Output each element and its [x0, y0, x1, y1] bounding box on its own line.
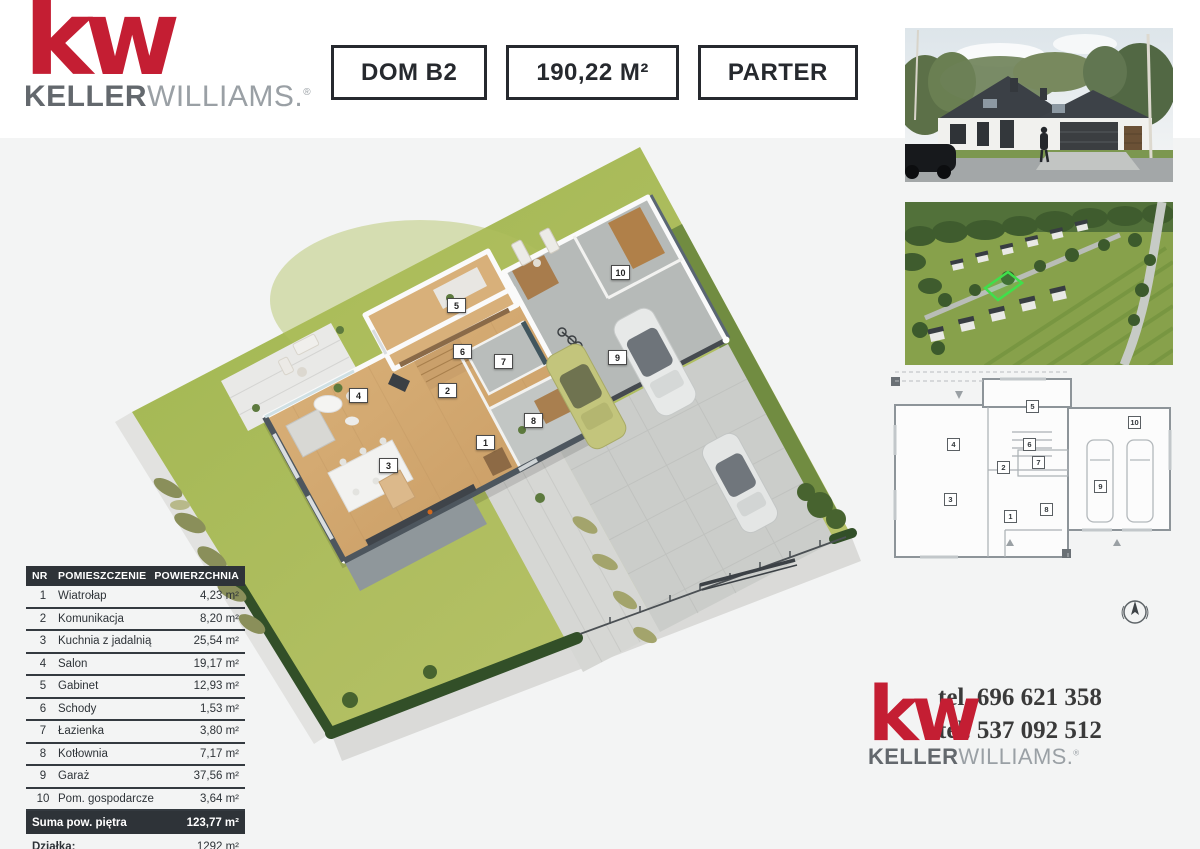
room-label-2d: 4: [947, 438, 960, 451]
header-badges: DOM B2 190,22 M² PARTER: [331, 45, 858, 100]
table-row: 3Kuchnia z jadalnią25,54 m²: [26, 631, 245, 654]
room-label-2d: 7: [1032, 456, 1045, 469]
table-plot-row: Działka:1292 m²: [26, 834, 245, 849]
room-label-2d: 2: [997, 461, 1010, 474]
table-summary-row: Suma pow. piętra123,77 m²: [26, 811, 245, 834]
room-label-2d: 5: [1026, 400, 1039, 413]
room-label-2d: 10: [1128, 416, 1141, 429]
table-row: 1Wiatrołap4,23 m²: [26, 586, 245, 609]
room-area-table: NR POMIESZCZENIE POWIERZCHNIA 1Wiatrołap…: [26, 566, 245, 849]
room-label-3d: 3: [379, 458, 398, 473]
room-label-3d: 9: [608, 350, 627, 365]
table-row: 7Łazienka3,80 m²: [26, 721, 245, 744]
room-label-2d: 8: [1040, 503, 1053, 516]
keller-williams-logo-top: kw KELLERWILLIAMS.®: [24, 0, 311, 112]
table-row: 5Gabinet12,93 m²: [26, 676, 245, 699]
badge-floor-name: PARTER: [698, 45, 858, 100]
room-label-3d: 5: [447, 298, 466, 313]
badge-total-area: 190,22 M²: [506, 45, 679, 100]
compass-icon: [1122, 601, 1148, 623]
keller-williams-logo-bottom: kw KELLERWILLIAMS.®: [868, 676, 1080, 768]
room-label-3d: 10: [611, 265, 630, 280]
coffee-table: [314, 396, 342, 413]
room-label-3d: 8: [524, 413, 543, 428]
room-label-3d: 4: [349, 388, 368, 403]
table-header: NR POMIESZCZENIE POWIERZCHNIA: [26, 566, 245, 586]
flyer-page: kw KELLERWILLIAMS.® DOM B2 190,22 M² PAR…: [0, 0, 1200, 849]
room-label-2d: 9: [1094, 480, 1107, 493]
room-label-2d: 3: [944, 493, 957, 506]
room-label-3d: 1: [476, 435, 495, 450]
room-label-3d: 2: [438, 383, 457, 398]
room-label-3d: 7: [494, 354, 513, 369]
table-row: 2Komunikacja8,20 m²: [26, 609, 245, 632]
room-label-2d: 1: [1004, 510, 1017, 523]
table-row: 4Salon19,17 m²: [26, 654, 245, 677]
table-row: 8Kotłownia7,17 m²: [26, 744, 245, 767]
badge-house-name: DOM B2: [331, 45, 487, 100]
aerial-photo: [898, 202, 1174, 390]
kw-logo-mark: kw: [24, 0, 311, 90]
table-row: 6Schody1,53 m²: [26, 699, 245, 722]
kw-logo-name: KELLERWILLIAMS.®: [868, 746, 1080, 768]
table-row: 9Garaż37,56 m²: [26, 766, 245, 789]
room-label-3d: 6: [453, 344, 472, 359]
kw-logo-name: KELLERWILLIAMS.®: [24, 82, 311, 112]
kw-logo-mark: kw: [868, 676, 1080, 752]
table-row: 10Pom. gospodarcze3,64 m²: [26, 789, 245, 812]
room-label-2d: 6: [1023, 438, 1036, 451]
house-photo: [895, 25, 1176, 182]
